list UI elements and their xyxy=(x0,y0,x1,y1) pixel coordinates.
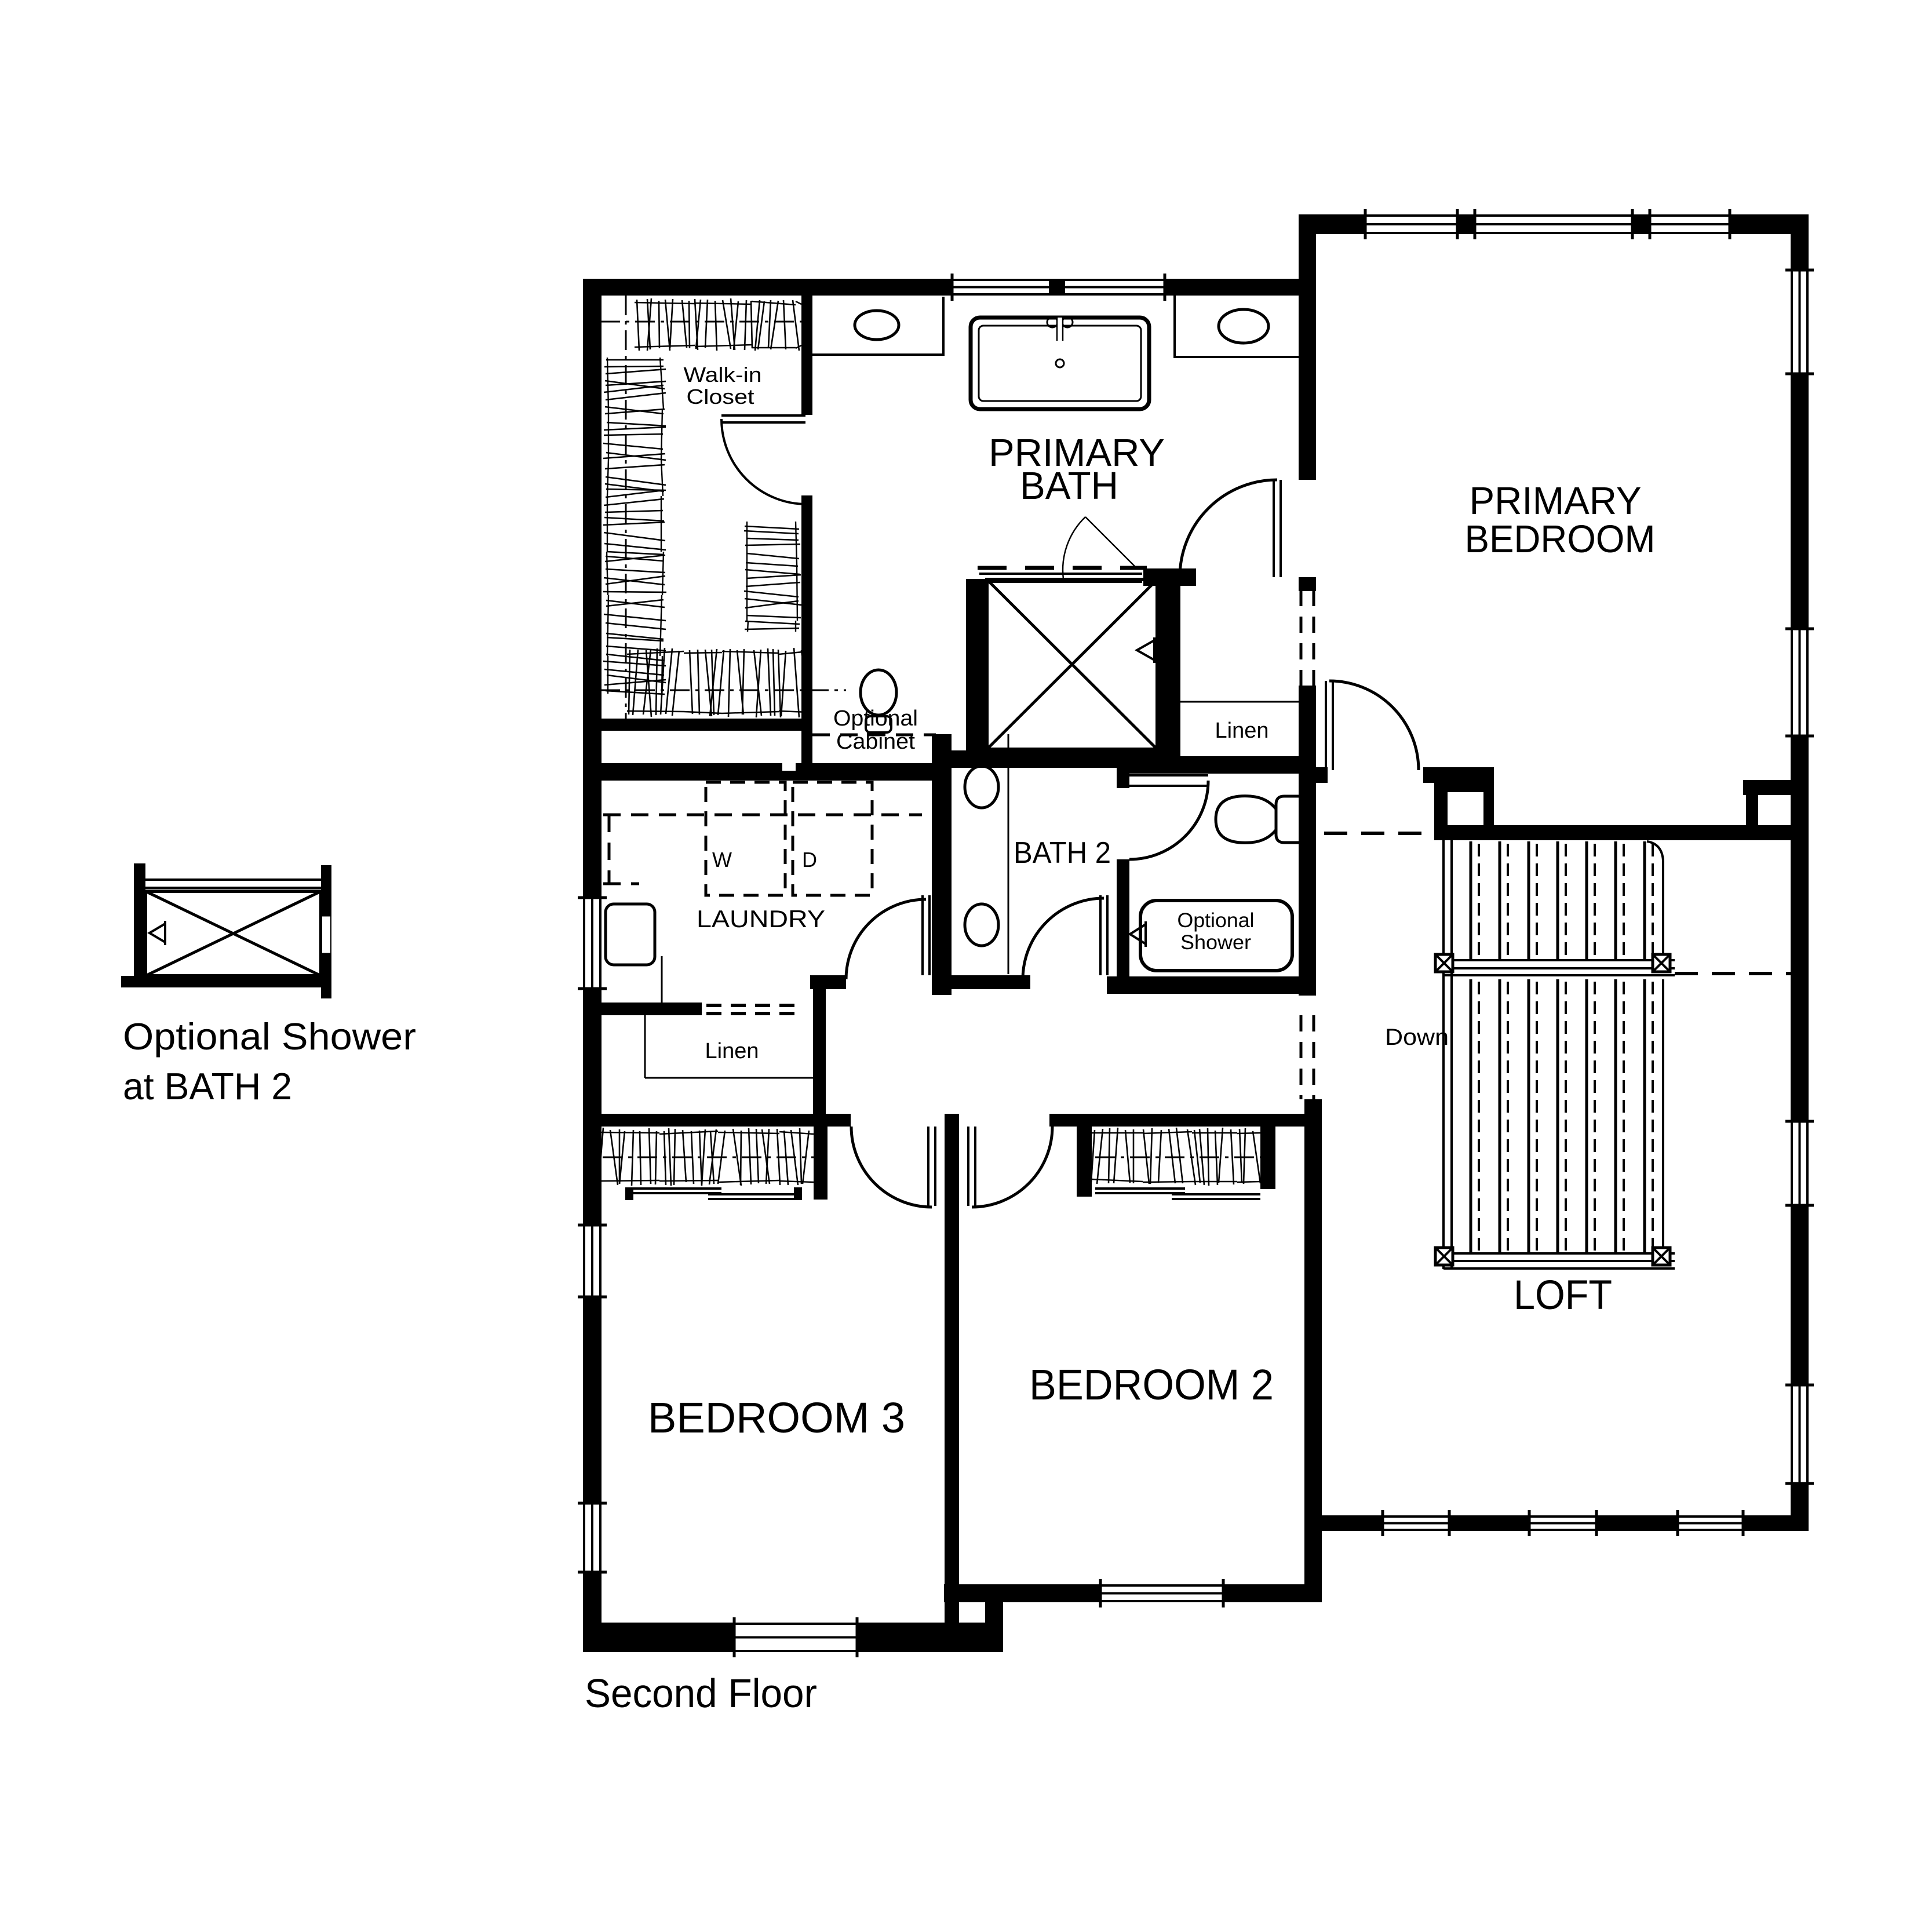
svg-text:Optional: Optional xyxy=(1178,909,1255,932)
svg-text:Cabinet: Cabinet xyxy=(836,730,915,754)
svg-text:Down: Down xyxy=(1385,1025,1449,1050)
svg-text:D: D xyxy=(802,848,817,872)
svg-text:Optional Shower: Optional Shower xyxy=(123,1015,416,1058)
svg-text:Optional: Optional xyxy=(833,706,918,731)
svg-text:BEDROOM 2: BEDROOM 2 xyxy=(1029,1361,1274,1409)
svg-text:Second Floor: Second Floor xyxy=(585,1671,817,1716)
svg-text:BATH 2: BATH 2 xyxy=(1014,836,1111,870)
svg-text:LOFT: LOFT xyxy=(1514,1273,1612,1318)
svg-text:PRIMARY: PRIMARY xyxy=(1470,479,1642,523)
svg-text:Linen: Linen xyxy=(1215,719,1269,743)
svg-text:W: W xyxy=(712,848,732,872)
svg-text:BATH: BATH xyxy=(1020,464,1118,508)
svg-text:Closet: Closet xyxy=(687,385,754,409)
svg-text:Walk-in: Walk-in xyxy=(684,363,762,387)
svg-text:Linen: Linen xyxy=(705,1039,759,1063)
svg-text:BEDROOM 3: BEDROOM 3 xyxy=(648,1394,905,1442)
svg-text:BEDROOM: BEDROOM xyxy=(1465,517,1656,561)
svg-text:at BATH 2: at BATH 2 xyxy=(123,1065,292,1107)
svg-text:Shower: Shower xyxy=(1180,931,1251,954)
svg-text:LAUNDRY: LAUNDRY xyxy=(697,905,825,932)
